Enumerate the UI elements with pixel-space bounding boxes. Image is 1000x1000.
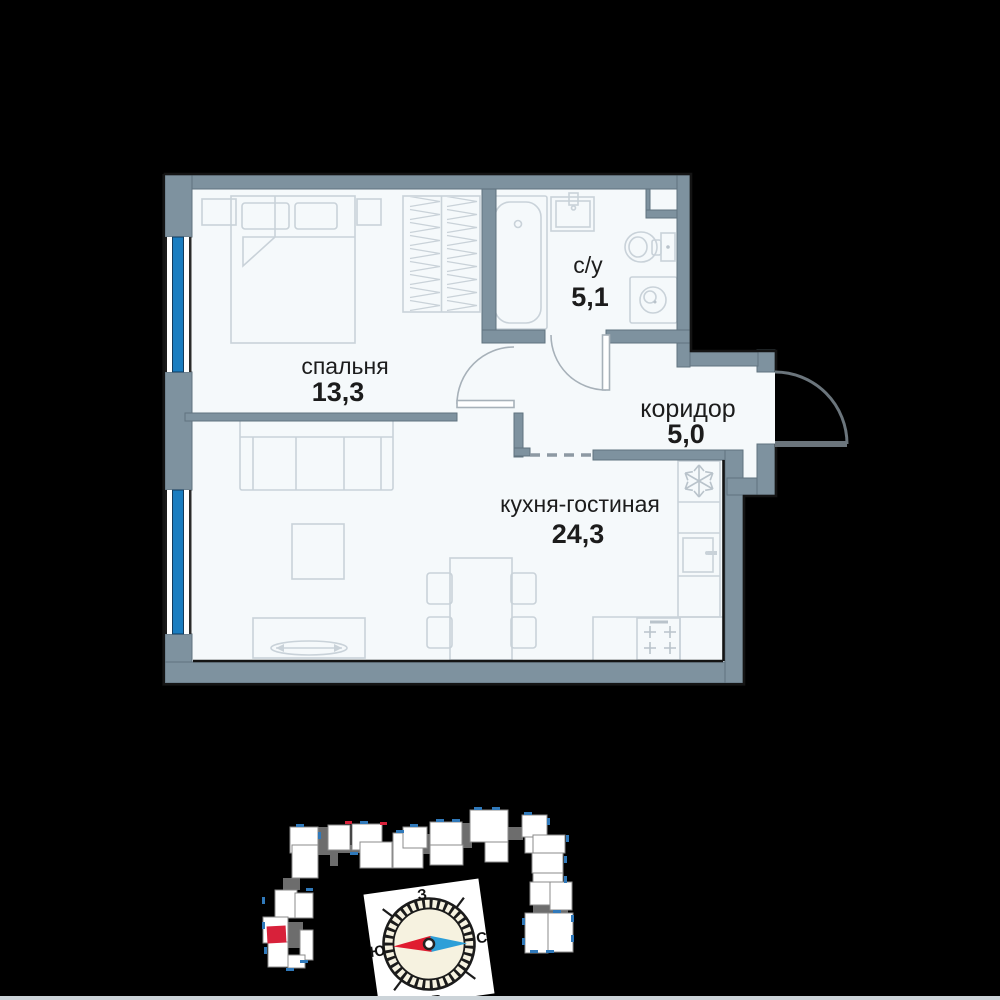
building-block [525,913,548,953]
balcony-tick [522,938,525,945]
building-block [268,942,288,967]
red-tick [380,822,387,825]
balcony-tick [530,950,538,953]
balcony-tick [318,832,321,839]
building-block [328,825,350,850]
balcony-tick [410,824,418,827]
window-glass [173,237,184,372]
room-name: кухня-гостиная [500,491,660,517]
balcony-tick [571,915,574,922]
building-block [403,827,427,848]
living-room-window [164,490,192,634]
balcony-tick [522,918,525,925]
balcony-tick [452,819,460,822]
compass-label-south: Ю [369,942,387,961]
apartment-location-highlight [267,925,287,943]
balcony-tick [306,888,313,891]
balcony-tick [396,830,404,833]
balcony-tick [300,960,308,963]
shaft-wall [646,210,677,218]
room-area: 5,1 [571,282,609,312]
balcony-tick [492,807,500,810]
building-block [530,882,550,905]
building-block [275,890,297,918]
building-block [548,913,573,952]
building-block [533,835,565,853]
building-block [292,845,318,878]
balcony-tick [564,856,567,863]
building-block [360,842,392,868]
building-block [522,815,547,837]
building-block [295,893,313,918]
balcony-tick [553,910,561,913]
room-area: 13,3 [312,377,365,407]
red-tick [345,821,352,824]
room-area: 24,3 [552,519,605,549]
balcony-tick [571,935,574,942]
balcony-tick [350,852,358,855]
compass-pivot [423,938,434,949]
balcony-tick [286,968,294,971]
building-block [485,842,508,862]
balcony-tick [262,922,265,929]
building-block [470,810,508,842]
room-area: 5,0 [667,419,705,449]
building-block [532,853,563,873]
balcony-tick [566,835,569,842]
building-block [430,845,463,865]
balcony-tick [264,947,267,954]
balcony-tick [262,897,265,904]
balcony-tick [296,824,304,827]
balcony-tick [564,876,567,883]
bottom-edge-strip [0,996,1000,1000]
building-core [283,878,300,890]
compass: З Ю С В [362,878,496,1000]
bedroom-window [164,237,192,372]
balcony-tick [436,819,444,822]
room-name: спальня [301,353,388,379]
balcony-tick [524,812,532,815]
balcony-tick [546,950,554,953]
building-block [430,822,462,848]
wardrobe [403,196,480,312]
balcony-tick [474,807,482,810]
balcony-tick [360,821,368,824]
building-core [330,850,338,866]
balcony-tick [547,818,550,825]
window-glass [173,490,184,634]
floor-plan-screenshot: спальня 13,3 с/у 5,1 коридор 5,0 кухня-г… [0,0,1000,1000]
building-block [550,882,572,910]
room-name: с/у [573,252,603,278]
